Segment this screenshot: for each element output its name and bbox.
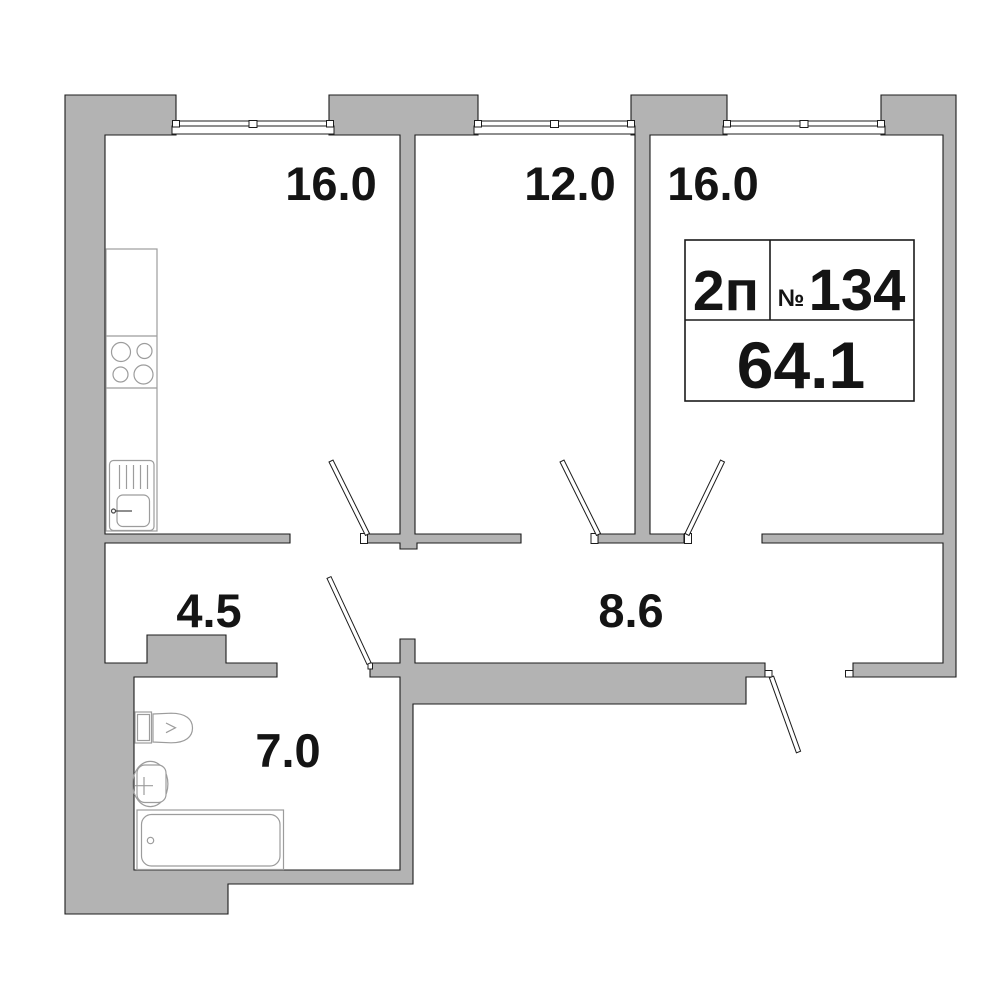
svg-text:2п: 2п xyxy=(693,259,759,323)
svg-text:№: № xyxy=(778,285,805,312)
svg-text:134: 134 xyxy=(809,258,906,323)
svg-text:8.6: 8.6 xyxy=(598,584,663,637)
svg-text:64.1: 64.1 xyxy=(737,328,865,402)
svg-text:16.0: 16.0 xyxy=(285,157,376,210)
svg-text:16.0: 16.0 xyxy=(667,157,758,210)
svg-text:4.5: 4.5 xyxy=(176,584,241,637)
svg-text:7.0: 7.0 xyxy=(255,724,320,777)
svg-text:12.0: 12.0 xyxy=(524,157,615,210)
